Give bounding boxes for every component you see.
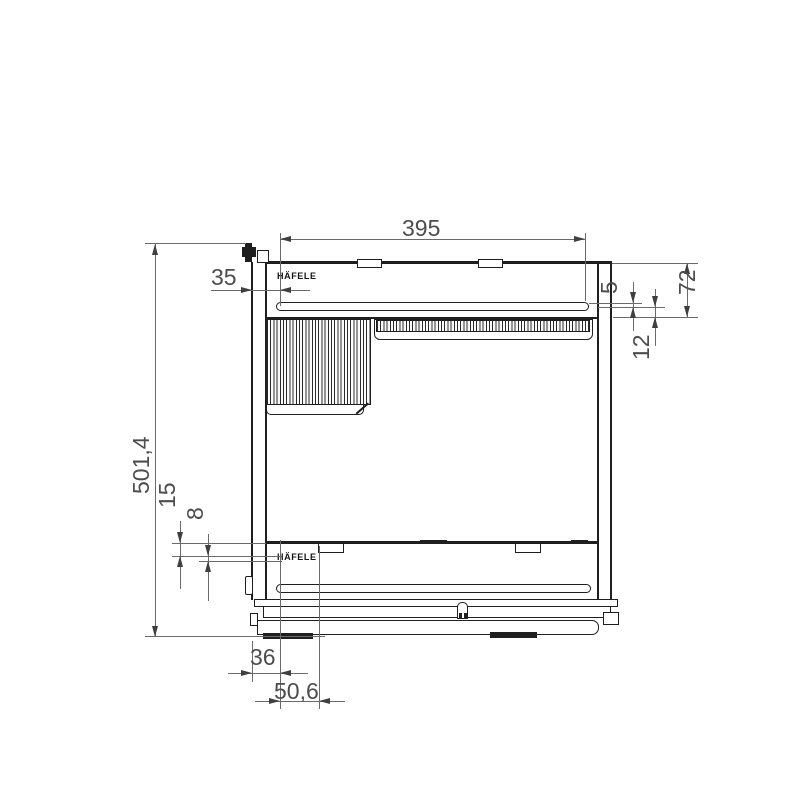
right-wall-outer-line xyxy=(610,263,612,600)
arrowhead xyxy=(280,236,291,242)
upper-handle-slot xyxy=(276,302,589,311)
dim-label-50-6: 50,6 xyxy=(274,680,319,703)
dim-label-12: 12 xyxy=(630,330,653,360)
dim-label-8: 8 xyxy=(184,496,207,520)
ext-line xyxy=(585,233,586,301)
lower-clip-right xyxy=(515,543,541,553)
ext-line xyxy=(172,543,266,544)
dim-line-501 xyxy=(155,244,156,637)
arrowhead xyxy=(152,626,158,637)
bottom-right-step xyxy=(603,612,619,625)
ribbed-block xyxy=(266,319,371,405)
arrowhead xyxy=(684,306,690,317)
dim-label-36: 36 xyxy=(250,646,276,669)
arrowhead xyxy=(319,698,330,704)
dim-label-501-4: 501,4 xyxy=(130,414,153,494)
flush-latch-center xyxy=(420,540,447,544)
arrowhead xyxy=(630,292,636,303)
arrowhead xyxy=(241,287,252,293)
ext-line xyxy=(199,561,282,562)
arrowhead xyxy=(205,545,211,556)
flush-latch-right xyxy=(571,540,588,544)
arrowhead xyxy=(280,287,291,293)
arrowhead xyxy=(177,556,183,567)
ext-line xyxy=(589,303,642,304)
left-wall-outer-line xyxy=(251,262,253,600)
ext-line xyxy=(280,233,281,306)
arrowhead xyxy=(280,670,291,676)
arrowhead xyxy=(652,296,658,307)
dim-label-5: 5 xyxy=(598,270,621,294)
left-wall-inner-line xyxy=(265,262,267,600)
dim-line-35 xyxy=(211,290,310,291)
arrowhead xyxy=(241,670,252,676)
top-clip-right xyxy=(478,259,503,268)
dim-label-35: 35 xyxy=(211,266,237,289)
ext-line xyxy=(172,556,282,557)
lower-handle-slot xyxy=(276,584,591,593)
ribbed-strip xyxy=(376,320,590,332)
hafele-technical-drawing: HÄFELE HÄFELE 395 35 501,4 15 8 5 72 xyxy=(0,0,800,800)
dim-label-15: 15 xyxy=(156,478,179,508)
ext-line xyxy=(145,243,246,244)
bottom-rail-middle xyxy=(263,606,611,618)
adjustment-pin-cap xyxy=(242,247,256,257)
ribbed-block-rim xyxy=(266,404,364,415)
center-clip-foot-left xyxy=(459,613,462,618)
side-latch-protrusion xyxy=(245,576,253,595)
arrowhead xyxy=(630,307,636,318)
foot-pad-right xyxy=(490,632,537,638)
arrowhead xyxy=(574,236,585,242)
ext-line xyxy=(145,636,325,637)
brand-logo-upper: HÄFELE xyxy=(277,272,317,281)
pin-bracket xyxy=(257,250,269,263)
arrowhead xyxy=(205,561,211,572)
right-wall-inner-line xyxy=(597,263,599,600)
dim-label-72: 72 xyxy=(676,267,699,295)
arrowhead xyxy=(152,244,158,255)
dim-label-395: 395 xyxy=(402,217,440,240)
top-rail-line xyxy=(266,261,612,264)
lower-clip-left xyxy=(318,543,344,553)
dim-line-36 xyxy=(228,673,308,674)
center-clip-foot-right xyxy=(464,613,467,618)
ext-line xyxy=(319,546,320,709)
arrowhead xyxy=(177,532,183,543)
brand-logo-lower: HÄFELE xyxy=(277,553,317,562)
arrowhead xyxy=(652,317,658,328)
top-clip-left xyxy=(357,259,382,268)
